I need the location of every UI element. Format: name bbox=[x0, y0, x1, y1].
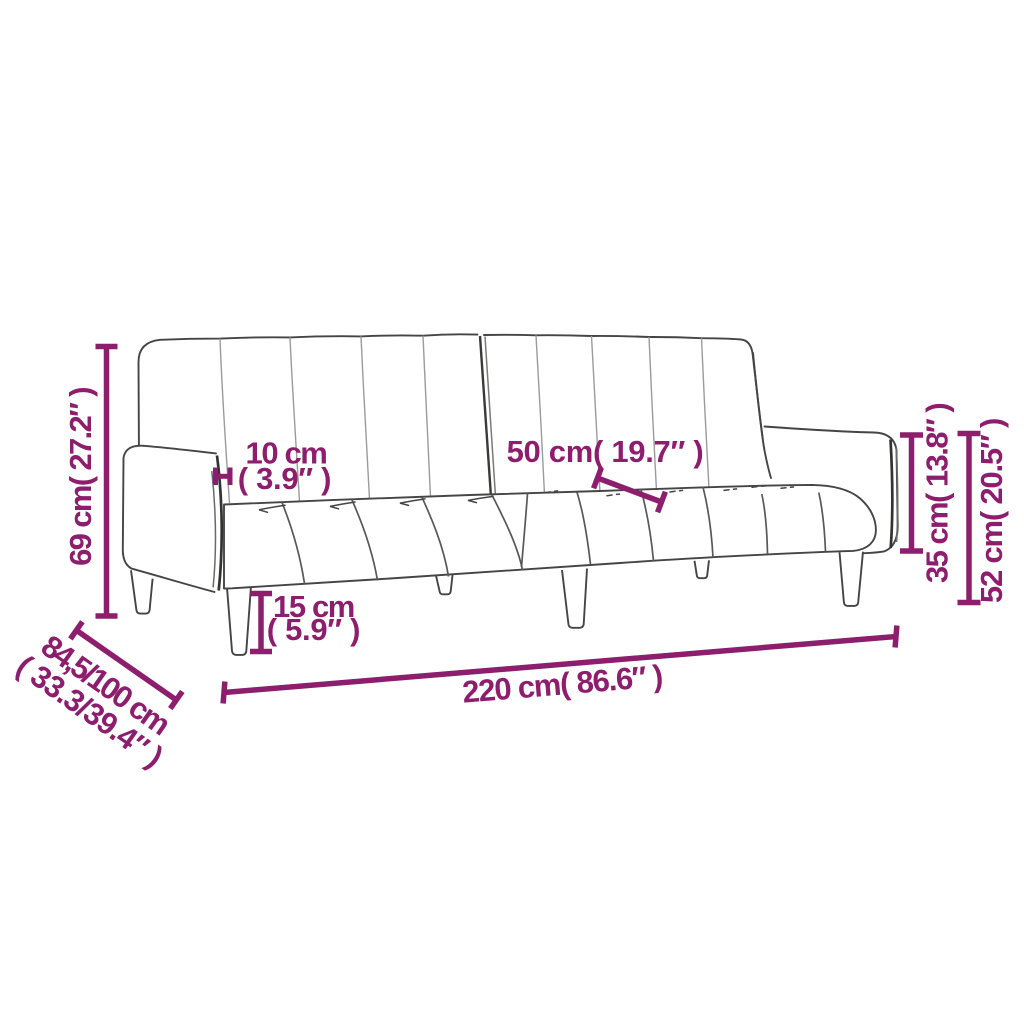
svg-text:35 cm( 13.8″ ): 35 cm( 13.8″ ) bbox=[920, 404, 955, 583]
svg-text:( 3.9″ ): ( 3.9″ ) bbox=[238, 461, 331, 496]
svg-text:( 5.9″ ): ( 5.9″ ) bbox=[267, 612, 360, 647]
svg-text:52 cm( 20.5″ ): 52 cm( 20.5″ ) bbox=[974, 419, 1009, 603]
svg-text:69 cm( 27.2″ ): 69 cm( 27.2″ ) bbox=[63, 388, 98, 566]
svg-text:50 cm( 19.7″ ): 50 cm( 19.7″ ) bbox=[507, 434, 704, 469]
